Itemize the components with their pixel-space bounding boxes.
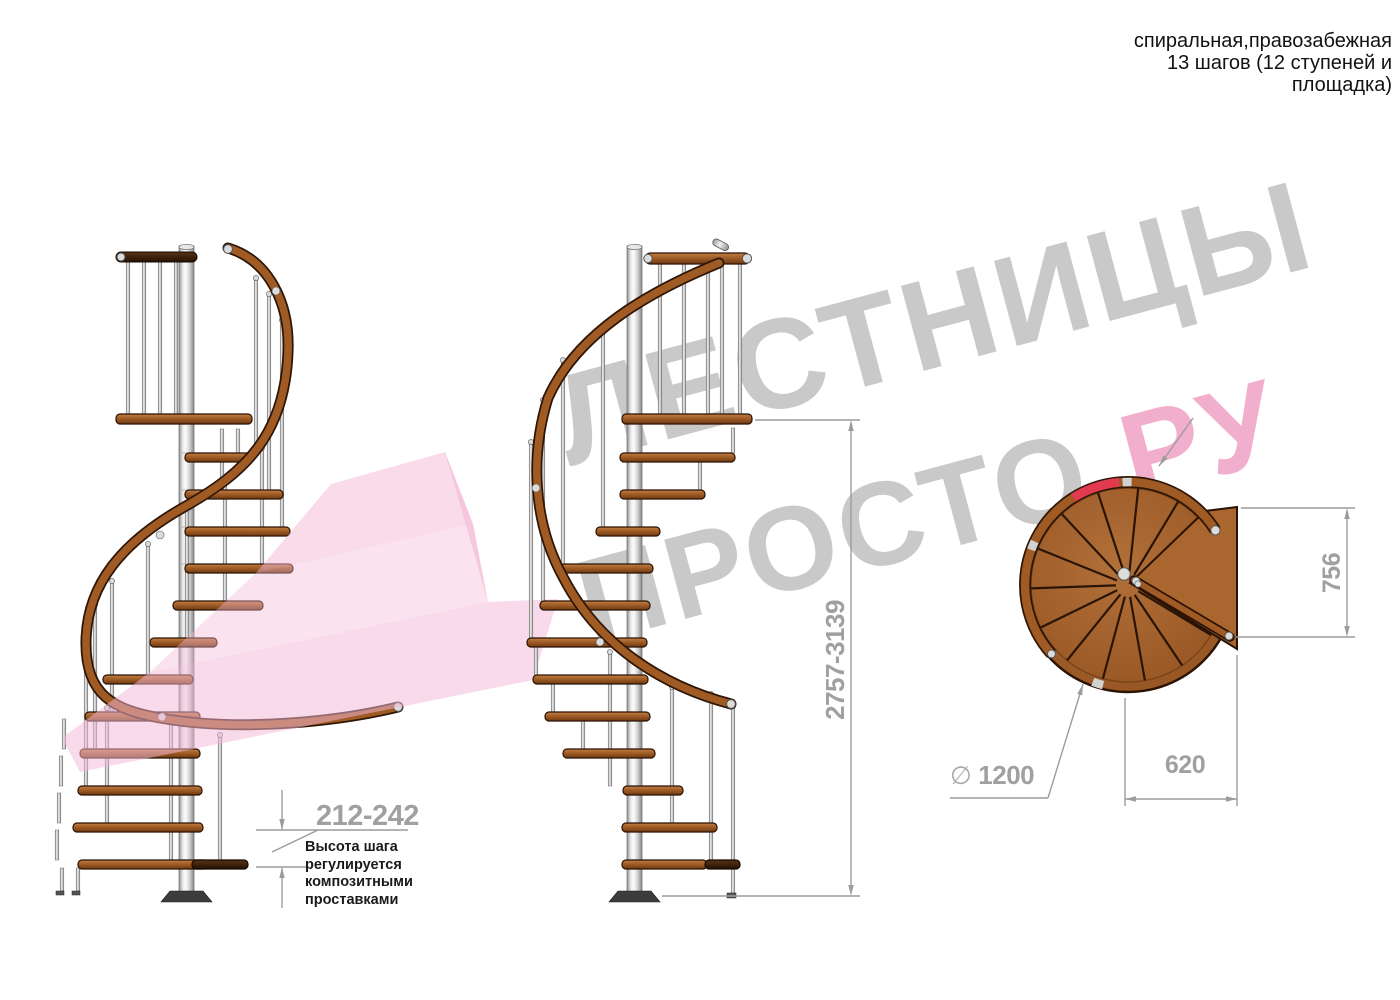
left-balusters [55,262,284,895]
dim-total-height-value: 2757-3139 [820,598,850,722]
dim-step-height-value: 212-242 [316,800,419,833]
arrow-down-icon [279,819,284,830]
left-landing-rail [116,252,197,262]
pink-logo-shape [62,452,558,772]
arrow-up-right-icon [1077,684,1083,695]
dim-plan-depth-value: 756 [1318,511,1346,635]
arrow-down-left-icon [1159,456,1168,467]
center-staircase-elevation [527,238,752,902]
staircase-technical-drawing: .railo{fill:none;stroke:#2e1606;stroke-w… [0,0,1400,1000]
dim-plan-width-value: 620 [1135,751,1235,780]
handrail-leader-arrow [1159,418,1193,466]
arrow-left-icon [1125,796,1136,801]
dim-diameter-value: ∅1200 [950,760,1034,791]
drawing-canvas: ЛЕСТНИЦЫ ПРОСТО.РУ .rai [0,0,1400,1000]
diameter-number: 1200 [978,760,1034,790]
arrow-up-icon [848,420,853,431]
drawing-title: спиральная,правозабежная 13 шагов (12 ст… [1134,30,1392,96]
arrow-right-icon [1226,796,1237,801]
plan-view [1021,478,1237,692]
arrow-up-icon [279,867,284,878]
step-height-note: Высота шага регулируется композитными пр… [305,839,413,909]
diameter-symbol-icon: ∅ [950,762,971,790]
plan-center-pole [1118,568,1130,580]
arrow-down-icon [848,885,853,896]
center-landing-rail [644,238,752,264]
